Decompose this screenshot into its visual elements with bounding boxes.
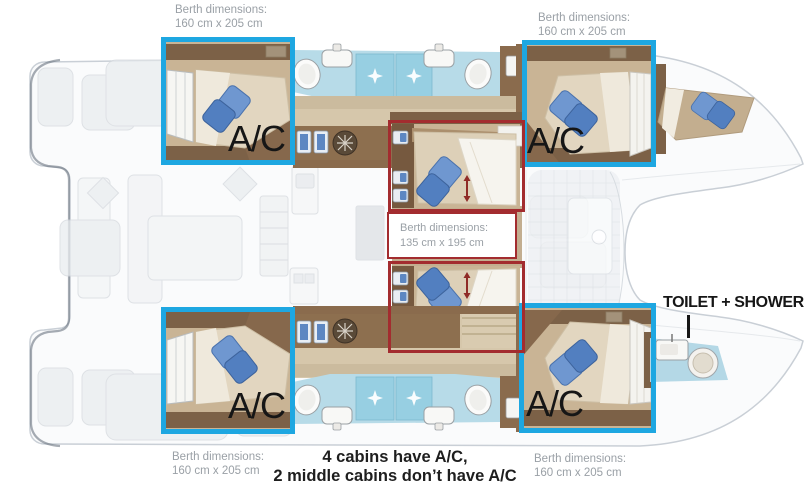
footnote-line-2: 2 middle cabins don’t have A/C	[240, 467, 550, 486]
ac-label-top-right: A/C	[527, 123, 584, 159]
bathroom-top	[291, 44, 528, 100]
ac-label-top-left: A/C	[228, 121, 285, 157]
boat-floor-plan: A/C A/C A/C A/C Berth dimensions: 135 cm…	[0, 0, 810, 500]
berth-label-line: 160 cm x 205 cm	[175, 17, 267, 31]
toilet-shower-label: TOILET + SHOWER	[663, 294, 804, 312]
berth-label-top-left: Berth dimensions: 160 cm x 205 cm	[175, 3, 267, 31]
berth-label-line: Berth dimensions:	[538, 11, 630, 25]
ac-label-bottom-left: A/C	[228, 388, 285, 424]
bathroom-bottom	[291, 374, 528, 430]
ac-label-bottom-right: A/C	[526, 386, 583, 422]
middle-cabin-box-bottom	[388, 261, 525, 353]
berth-label-line: Berth dimensions:	[400, 221, 515, 236]
footnote: 4 cabins have A/C, 2 middle cabins don’t…	[240, 448, 550, 486]
berth-dimensions-callout-middle: Berth dimensions: 135 cm x 195 cm	[387, 212, 517, 259]
berth-label-line: Berth dimensions:	[175, 3, 267, 17]
middle-cabin-box-top	[388, 120, 525, 212]
berth-label-line: 160 cm x 205 cm	[538, 25, 630, 39]
berth-label-top-right: Berth dimensions: 160 cm x 205 cm	[538, 11, 630, 39]
berth-label-line: 135 cm x 195 cm	[400, 236, 515, 251]
footnote-line-1: 4 cabins have A/C,	[240, 448, 550, 467]
toilet-shower-pointer-line	[687, 315, 690, 338]
